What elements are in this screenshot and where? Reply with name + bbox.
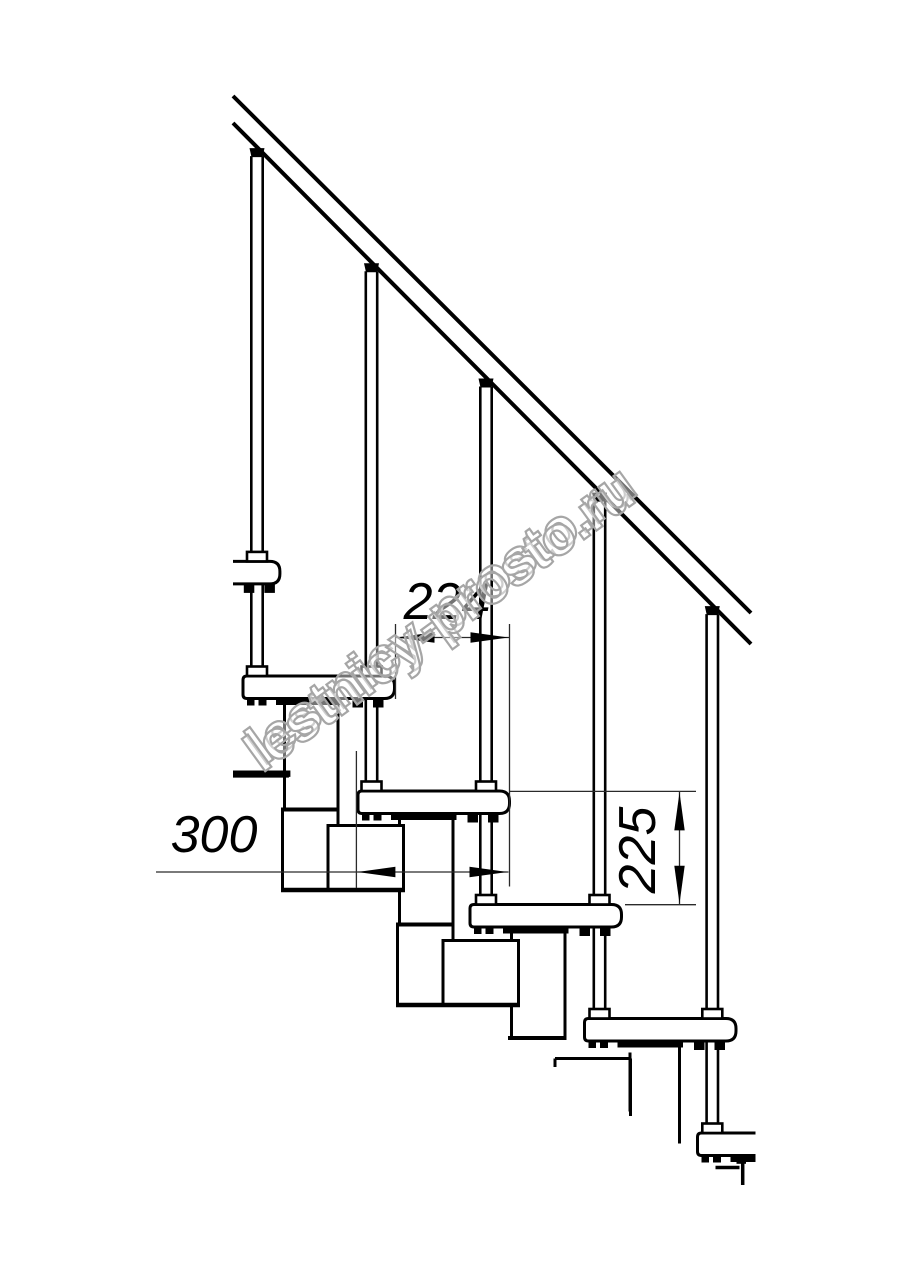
svg-text:300: 300	[171, 806, 258, 864]
svg-text:225: 225	[609, 806, 667, 895]
